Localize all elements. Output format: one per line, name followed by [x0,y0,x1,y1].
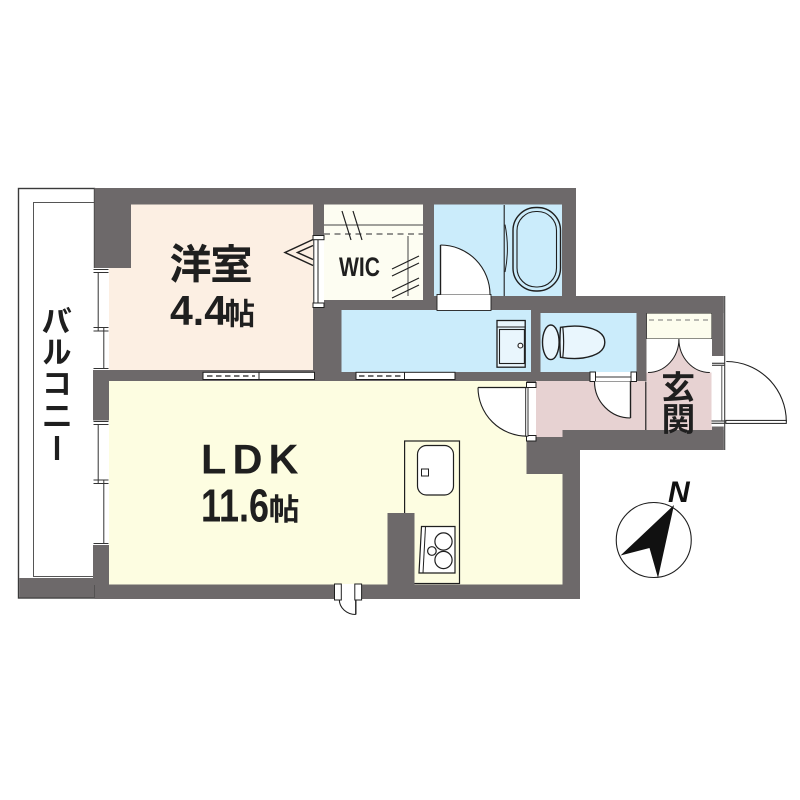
svg-text:4.4: 4.4 [170,287,228,334]
svg-text:N: N [668,476,691,509]
svg-text:LDK: LDK [201,436,299,483]
svg-text:11.6: 11.6 [201,480,269,532]
svg-text:WIC: WIC [339,252,380,282]
